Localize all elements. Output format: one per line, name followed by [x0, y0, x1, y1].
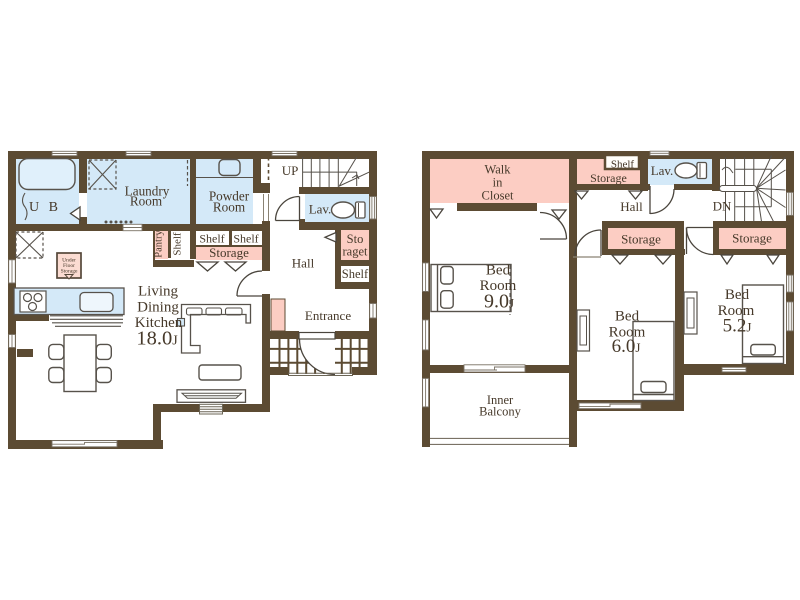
- svg-text:Hall: Hall: [292, 256, 315, 271]
- svg-text:Bed: Bed: [725, 287, 750, 303]
- svg-text:Lav.: Lav.: [309, 202, 332, 217]
- svg-text:DN: DN: [713, 199, 732, 214]
- svg-text:Closet: Closet: [482, 189, 514, 203]
- svg-text:Bed: Bed: [486, 263, 511, 279]
- svg-text:18.0J: 18.0J: [136, 328, 178, 350]
- svg-text:Balcony: Balcony: [479, 405, 521, 419]
- svg-text:Shelf: Shelf: [611, 159, 635, 171]
- svg-text:Bed: Bed: [615, 309, 640, 325]
- svg-text:Hall: Hall: [620, 199, 643, 214]
- svg-text:Pantry: Pantry: [154, 230, 165, 258]
- svg-text:Living: Living: [138, 284, 178, 300]
- svg-text:in: in: [493, 176, 503, 190]
- svg-text:Shelf: Shelf: [233, 232, 258, 246]
- svg-text:Entrance: Entrance: [305, 308, 351, 323]
- svg-text:Dining: Dining: [137, 300, 179, 316]
- svg-text:Room: Room: [130, 194, 163, 209]
- svg-text:Walk: Walk: [484, 163, 511, 177]
- svg-text:Storage: Storage: [621, 232, 661, 247]
- svg-text:UP: UP: [282, 163, 299, 178]
- svg-text:Lav.: Lav.: [651, 163, 674, 178]
- svg-text:raget: raget: [343, 245, 369, 259]
- svg-text:6.0J: 6.0J: [612, 336, 641, 357]
- svg-text:Shelf: Shelf: [172, 232, 184, 256]
- svg-text:U B: U B: [29, 200, 61, 215]
- svg-text:5.2J: 5.2J: [723, 316, 752, 337]
- svg-text:Shelf: Shelf: [342, 267, 369, 281]
- svg-text:Storage: Storage: [209, 245, 249, 260]
- svg-text:Storage: Storage: [61, 269, 78, 275]
- svg-text:Shelf: Shelf: [199, 232, 224, 246]
- svg-text:Storage: Storage: [590, 171, 627, 185]
- svg-text:Storage: Storage: [732, 231, 772, 246]
- svg-text:Room: Room: [213, 200, 246, 215]
